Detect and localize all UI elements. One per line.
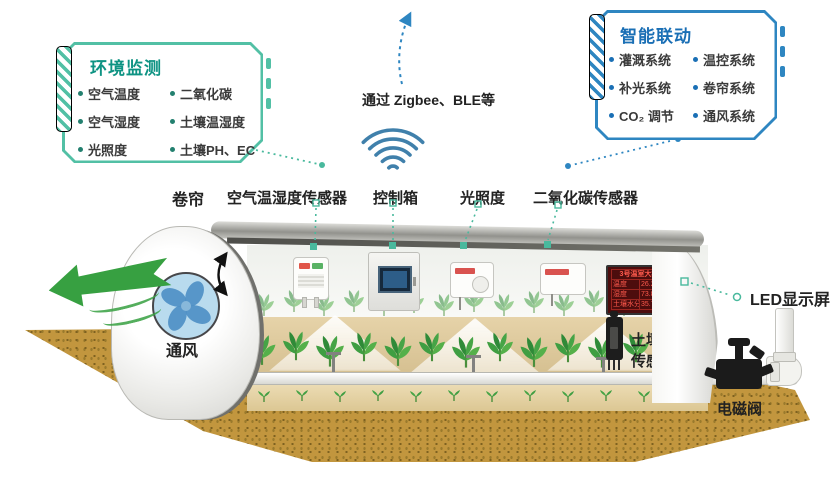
- env-item: 空气温度: [78, 84, 170, 103]
- bullet-dot: [693, 85, 698, 90]
- env-item-label: 土壤PH、EC: [180, 140, 255, 159]
- link-item-label: 温控系统: [703, 50, 755, 69]
- bullet-dot: [693, 57, 698, 62]
- connector-square: [555, 202, 561, 208]
- env-item-label: 二氧化碳: [180, 84, 232, 103]
- env-item: 空气湿度: [78, 112, 170, 131]
- link-item-label: 卷帘系统: [703, 78, 755, 97]
- beam-square: [310, 243, 317, 250]
- bullet-dot: [693, 113, 698, 118]
- connector-circle: [734, 294, 741, 301]
- link-item-label: CO₂ 调节: [619, 106, 674, 125]
- panel-tick: [266, 58, 271, 69]
- panel-hatch-decoration: [56, 46, 72, 132]
- env-item-label: 土壤温湿度: [180, 112, 245, 131]
- beam-square: [389, 242, 396, 249]
- bullet-dot: [609, 85, 614, 90]
- connector-square: [390, 200, 396, 206]
- link-item-label: 补光系统: [619, 78, 671, 97]
- smart-greenhouse-diagram: 3号温室大棚 温度26.2℃ 湿度73.8%RH 土壤水分35.7% 土壤温湿度…: [0, 0, 834, 500]
- link-item: 通风系统: [693, 106, 783, 125]
- connector-square: [681, 278, 688, 285]
- bullet-dot: [78, 91, 83, 96]
- panel-tick: [266, 78, 271, 89]
- link-item: 补光系统: [609, 78, 693, 97]
- drop-line: [548, 210, 557, 240]
- bullet-dot: [170, 91, 175, 96]
- beam-square: [460, 242, 467, 249]
- bullet-dot: [609, 113, 614, 118]
- panel-tick: [780, 46, 785, 57]
- bullet-dot: [170, 147, 175, 152]
- link-item: 卷帘系统: [693, 78, 783, 97]
- smart-linkage-panel: 智能联动 灌溉系统 温控系统 补光系统 卷帘系统 CO₂ 调节 通风系统: [595, 10, 777, 140]
- bullet-dot: [78, 147, 83, 152]
- bullet-dot: [78, 119, 83, 124]
- connector-square: [475, 201, 481, 207]
- link-item: CO₂ 调节: [609, 106, 693, 125]
- env-monitoring-panel: 环境监测 空气温度 二氧化碳 空气湿度 土壤温湿度 光照度 土壤PH、EC: [62, 42, 263, 163]
- drop-line: [315, 208, 316, 242]
- env-item: 光照度: [78, 140, 170, 159]
- link-panel-title: 智能联动: [620, 22, 692, 47]
- link-item: 温控系统: [693, 50, 783, 69]
- roller-double-arrow-icon: [219, 254, 227, 294]
- up-dashed-arrow-icon: [399, 14, 410, 84]
- led-connector: [691, 283, 730, 295]
- link-item-label: 灌溉系统: [619, 50, 671, 69]
- panel-tick: [266, 98, 271, 109]
- bullet-dot: [609, 57, 614, 62]
- panel-tick: [780, 26, 785, 37]
- panel-hatch-decoration: [589, 14, 605, 100]
- env-panel-title: 环境监测: [90, 54, 162, 79]
- env-item: 土壤PH、EC: [170, 140, 270, 159]
- env-item-label: 光照度: [88, 140, 127, 159]
- link-connector: [572, 141, 670, 165]
- connector-dot: [319, 162, 325, 168]
- env-item-label: 空气湿度: [88, 112, 140, 131]
- env-item-label: 空气温度: [88, 84, 140, 103]
- link-item-label: 通风系统: [703, 106, 755, 125]
- connector-dot: [565, 163, 571, 169]
- drop-line: [465, 209, 477, 241]
- env-item: 土壤温湿度: [170, 112, 270, 131]
- bullet-dot: [170, 119, 175, 124]
- env-item: 二氧化碳: [170, 84, 270, 103]
- beam-square: [544, 241, 551, 248]
- connector-square: [313, 200, 319, 206]
- link-item: 灌溉系统: [609, 50, 693, 69]
- panel-tick: [780, 66, 785, 77]
